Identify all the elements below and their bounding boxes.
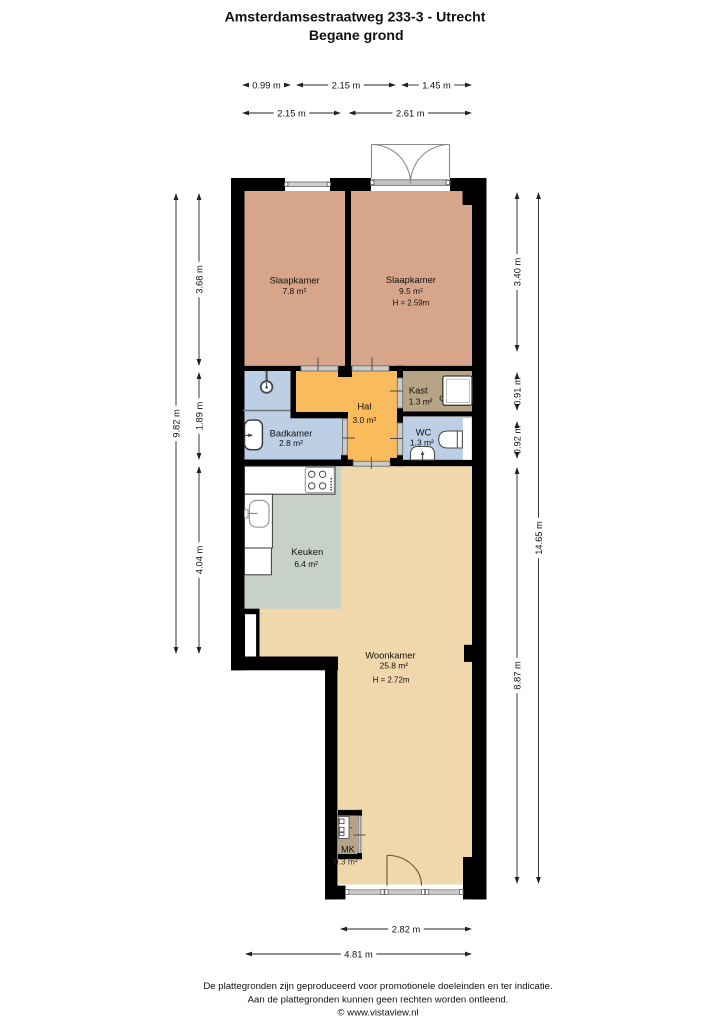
svg-text:Slaapkamer: Slaapkamer — [270, 274, 320, 285]
svg-text:H = 2.72m: H = 2.72m — [373, 676, 410, 685]
svg-text:2.61 m: 2.61 m — [396, 108, 425, 118]
svg-text:0.92 m: 0.92 m — [512, 426, 522, 455]
svg-text:Hal: Hal — [357, 400, 371, 411]
svg-text:4.81 m: 4.81 m — [344, 949, 373, 959]
svg-text:Slaapkamer: Slaapkamer — [386, 274, 436, 285]
svg-text:Badkamer: Badkamer — [270, 427, 313, 438]
svg-text:Amsterdamsestraatweg 233-3 - U: Amsterdamsestraatweg 233-3 - Utrecht — [225, 8, 486, 24]
svg-text:© www.vistaview.nl: © www.vistaview.nl — [337, 1007, 418, 1018]
svg-text:14.65 m: 14.65 m — [534, 521, 544, 555]
svg-text:3.0 m²: 3.0 m² — [353, 415, 377, 425]
svg-text:9.82 m: 9.82 m — [171, 409, 181, 438]
svg-text:1.3 m²: 1.3 m² — [410, 437, 434, 447]
svg-text:4.04 m: 4.04 m — [194, 546, 204, 575]
svg-text:Begane grond: Begane grond — [309, 27, 404, 43]
svg-text:Kast: Kast — [409, 384, 428, 395]
svg-text:2.15 m: 2.15 m — [277, 108, 306, 118]
svg-text:1.45 m: 1.45 m — [422, 80, 451, 90]
svg-text:WC: WC — [416, 427, 432, 438]
svg-text:H = 2.59m: H = 2.59m — [393, 299, 430, 308]
svg-text:6.4 m²: 6.4 m² — [294, 559, 318, 569]
svg-text:MK: MK — [341, 845, 356, 855]
svg-text:Woonkamer: Woonkamer — [365, 650, 415, 661]
svg-text:25.8 m²: 25.8 m² — [380, 660, 409, 670]
svg-text:7.8 m²: 7.8 m² — [283, 286, 307, 296]
svg-text:0.3 m²: 0.3 m² — [334, 857, 358, 867]
svg-text:2.82 m: 2.82 m — [392, 924, 421, 934]
svg-text:1.3 m²: 1.3 m² — [409, 397, 433, 407]
svg-text:0.91 m: 0.91 m — [512, 377, 522, 406]
svg-text:3.68 m: 3.68 m — [194, 265, 204, 294]
svg-text:2.8 m²: 2.8 m² — [279, 438, 303, 448]
svg-text:9.5 m²: 9.5 m² — [399, 286, 423, 296]
svg-text:Aan de plattegronden kunnen ge: Aan de plattegronden kunnen geen rechten… — [248, 994, 509, 1005]
svg-text:1.89 m: 1.89 m — [194, 402, 204, 431]
svg-text:8.87 m: 8.87 m — [512, 661, 522, 690]
svg-text:0.99 m: 0.99 m — [252, 80, 281, 90]
svg-text:De plattegronden zijn geproduc: De plattegronden zijn geproduceerd voor … — [203, 981, 552, 992]
svg-text:3.40 m: 3.40 m — [512, 258, 522, 287]
svg-text:2.15 m: 2.15 m — [332, 80, 361, 90]
svg-text:Keuken: Keuken — [291, 546, 323, 557]
